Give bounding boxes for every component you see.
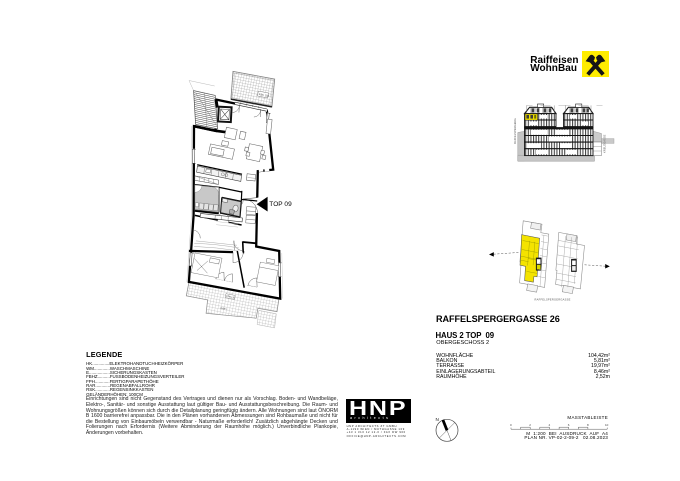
svg-text:RAFFELSPERGERG.: RAFFELSPERGERG. [513, 117, 517, 144]
svg-text:N: N [436, 417, 439, 422]
svg-text:2: 2 [529, 423, 531, 427]
svg-text:10: 10 [605, 423, 609, 427]
svg-text:8: 8 [587, 423, 589, 427]
svg-text:KREUZGASSE: KREUZGASSE [603, 134, 607, 153]
svg-text:RAFFELSPERGERGASSE: RAFFELSPERGERGASSE [535, 297, 571, 301]
svg-text:0: 0 [510, 423, 512, 427]
svg-text:4: 4 [549, 423, 551, 427]
svg-text:6: 6 [568, 423, 570, 427]
